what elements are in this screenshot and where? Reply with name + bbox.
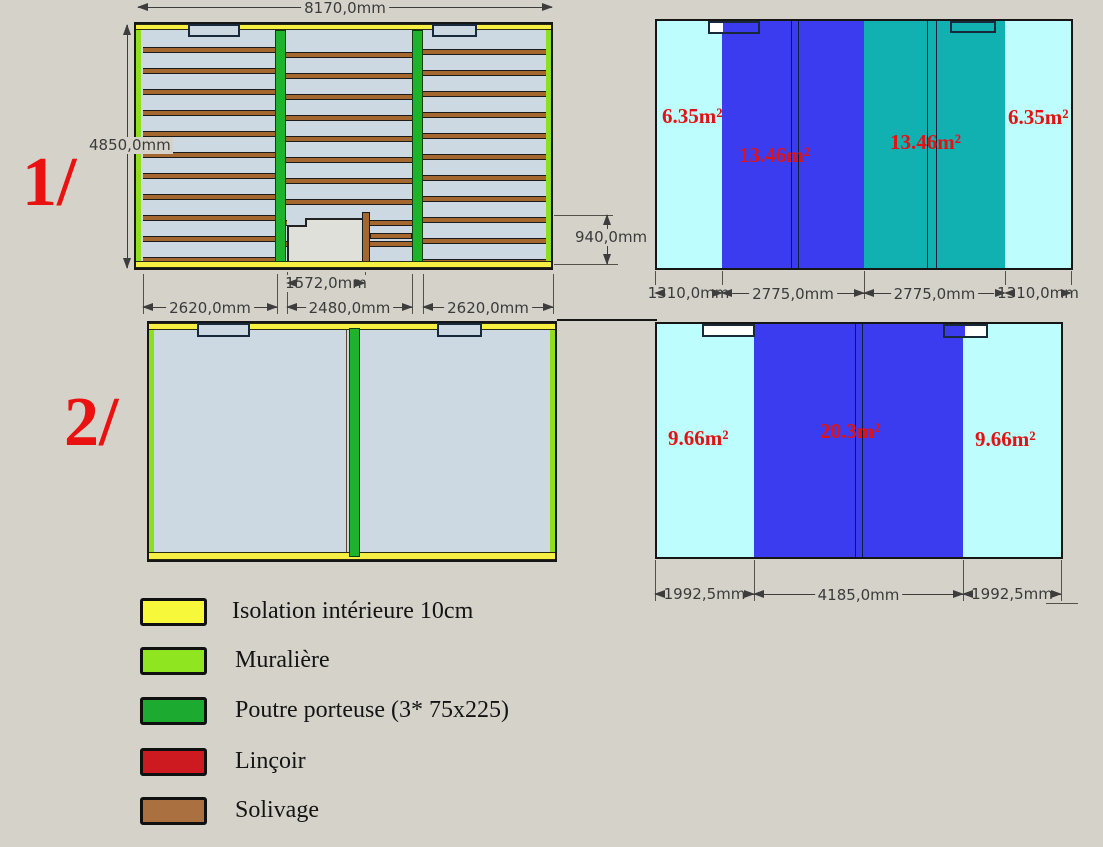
dim-opening-width: 1572,0mm [287,283,365,284]
legend-item-muraliere: Muralière [140,647,570,679]
area-value: 13.46m² [739,143,810,168]
dim-arrow-left [753,590,764,598]
dim-label: 4185,0mm [815,587,903,604]
muraliere-swatch [140,647,207,675]
lincoir-swatch [140,748,207,776]
wall-notch [708,21,760,34]
dim-label: 940,0mm [573,229,649,246]
wall-notch [702,324,755,337]
poutre-swatch [140,697,207,725]
legend-item-isolation: Isolation intérieure 10cm [140,598,570,630]
dim-zone-width: 4185,0mm [754,594,963,595]
wall-notch [950,21,996,33]
opening-header-joist [370,233,412,239]
plan2-deck-drawing [147,321,557,562]
dim-bay-left: 2620,0mm [143,307,277,308]
dim-overall-width: 8170,0mm [138,7,552,8]
legend-item-poutre: Poutre porteuse (3* 75x225) [140,697,570,729]
dim-zone-width: 1310,0mm [655,293,722,294]
framing-plan-sheet: 1/ 2/ 8170,0mm 4850,0mm 940,0mm [0,0,1103,847]
isolation-band-bottom [136,261,551,268]
area-value: 6.35m² [662,104,723,129]
dim-zone-width: 2775,0mm [864,293,1005,294]
bearing-beam-2 [412,30,423,262]
dim-zone-width: 1310,0mm [1005,293,1071,294]
area-value: 6.35m² [1008,105,1069,130]
area-diagram-top [655,19,1073,270]
dim-label: 1992,5mm [661,586,749,603]
legend-label: Muralière [235,647,330,674]
area-value: 9.66m² [975,427,1036,452]
dim-zone-width: 1992,5mm [963,594,1061,595]
joist-bay-right [423,34,548,263]
dim-arrow-left [962,590,973,598]
dim-zone-width: 1992,5mm [655,594,754,595]
dim-label: 2775,0mm [891,286,979,303]
dim-arrow-left [142,303,153,311]
dim-arrow-left [654,289,665,297]
plan1-index-label: 1/ [22,148,76,218]
legend-label: Solivage [235,797,319,824]
dim-arrow-down [603,254,611,265]
dim-label: 2620,0mm [444,300,532,317]
dim-bay-right: 2620,0mm [423,307,553,308]
area-value: 13.46m² [890,130,961,155]
dim-arrow-right [1051,590,1062,598]
isolation-swatch [140,598,207,626]
legend-label: Poutre porteuse (3* 75x225) [235,697,509,724]
dim-opening-height: 940,0mm [607,215,608,264]
dim-arrow-right [267,303,278,311]
dim-zone-width: 2775,0mm [722,293,864,294]
dim-arrow-left [422,303,433,311]
dim-label: 2480,0mm [306,300,394,317]
dim-arrow-left [1004,289,1015,297]
wall-notch [432,24,477,37]
dim-arrow-right [402,303,413,311]
dim-arrow-right [355,279,366,287]
wall-notch [943,324,988,338]
dim-arrow-right [543,303,554,311]
dim-label: 1992,5mm [968,586,1056,603]
bearing-beam-center [349,328,360,557]
muraliere-strip-right [550,330,555,552]
wall-notch [188,24,240,37]
dim-label: 2775,0mm [749,286,837,303]
deck-joint-line [346,330,347,552]
dim-bay-center: 2480,0mm [287,307,412,308]
plan1-framing-drawing [134,22,553,270]
dim-arrow-right [1061,289,1072,297]
dim-arrow-down [123,258,131,269]
dim-arrow-left [286,279,297,287]
legend-label: Linçoir [235,748,306,775]
dim-overall-height: 4850,0mm [127,25,128,268]
legend-label: Isolation intérieure 10cm [232,598,473,625]
legend-item-solivage: Solivage [140,797,570,829]
area-value: 20.3m² [820,419,881,444]
opening-step [287,218,307,227]
muraliere-strip-left [149,330,154,552]
dim-arrow-left [721,289,732,297]
dim-arrow-left [286,303,297,311]
bearing-beam-1 [275,30,286,262]
dim-arrow-right [542,3,553,11]
plan2-index-label: 2/ [64,388,118,458]
muraliere-strip-right [546,30,551,261]
dim-arrow-left [137,3,148,11]
dim-arrow-left [654,590,665,598]
area-value: 9.66m² [668,426,729,451]
dim-label: 8170,0mm [301,0,389,17]
dim-label: 2620,0mm [166,300,254,317]
wall-notch [437,323,482,337]
opening-trimmer-joist [362,212,370,263]
dim-label: 4850,0mm [87,137,173,154]
stray-tick-line [1046,603,1078,604]
connector-line [557,319,657,321]
wall-notch [197,323,250,337]
dim-arrow-left [863,289,874,297]
dim-arrow-up [123,24,131,35]
solivage-swatch [140,797,207,825]
dim-arrow-up [603,214,611,225]
legend-item-lincoir: Linçoir [140,748,570,780]
